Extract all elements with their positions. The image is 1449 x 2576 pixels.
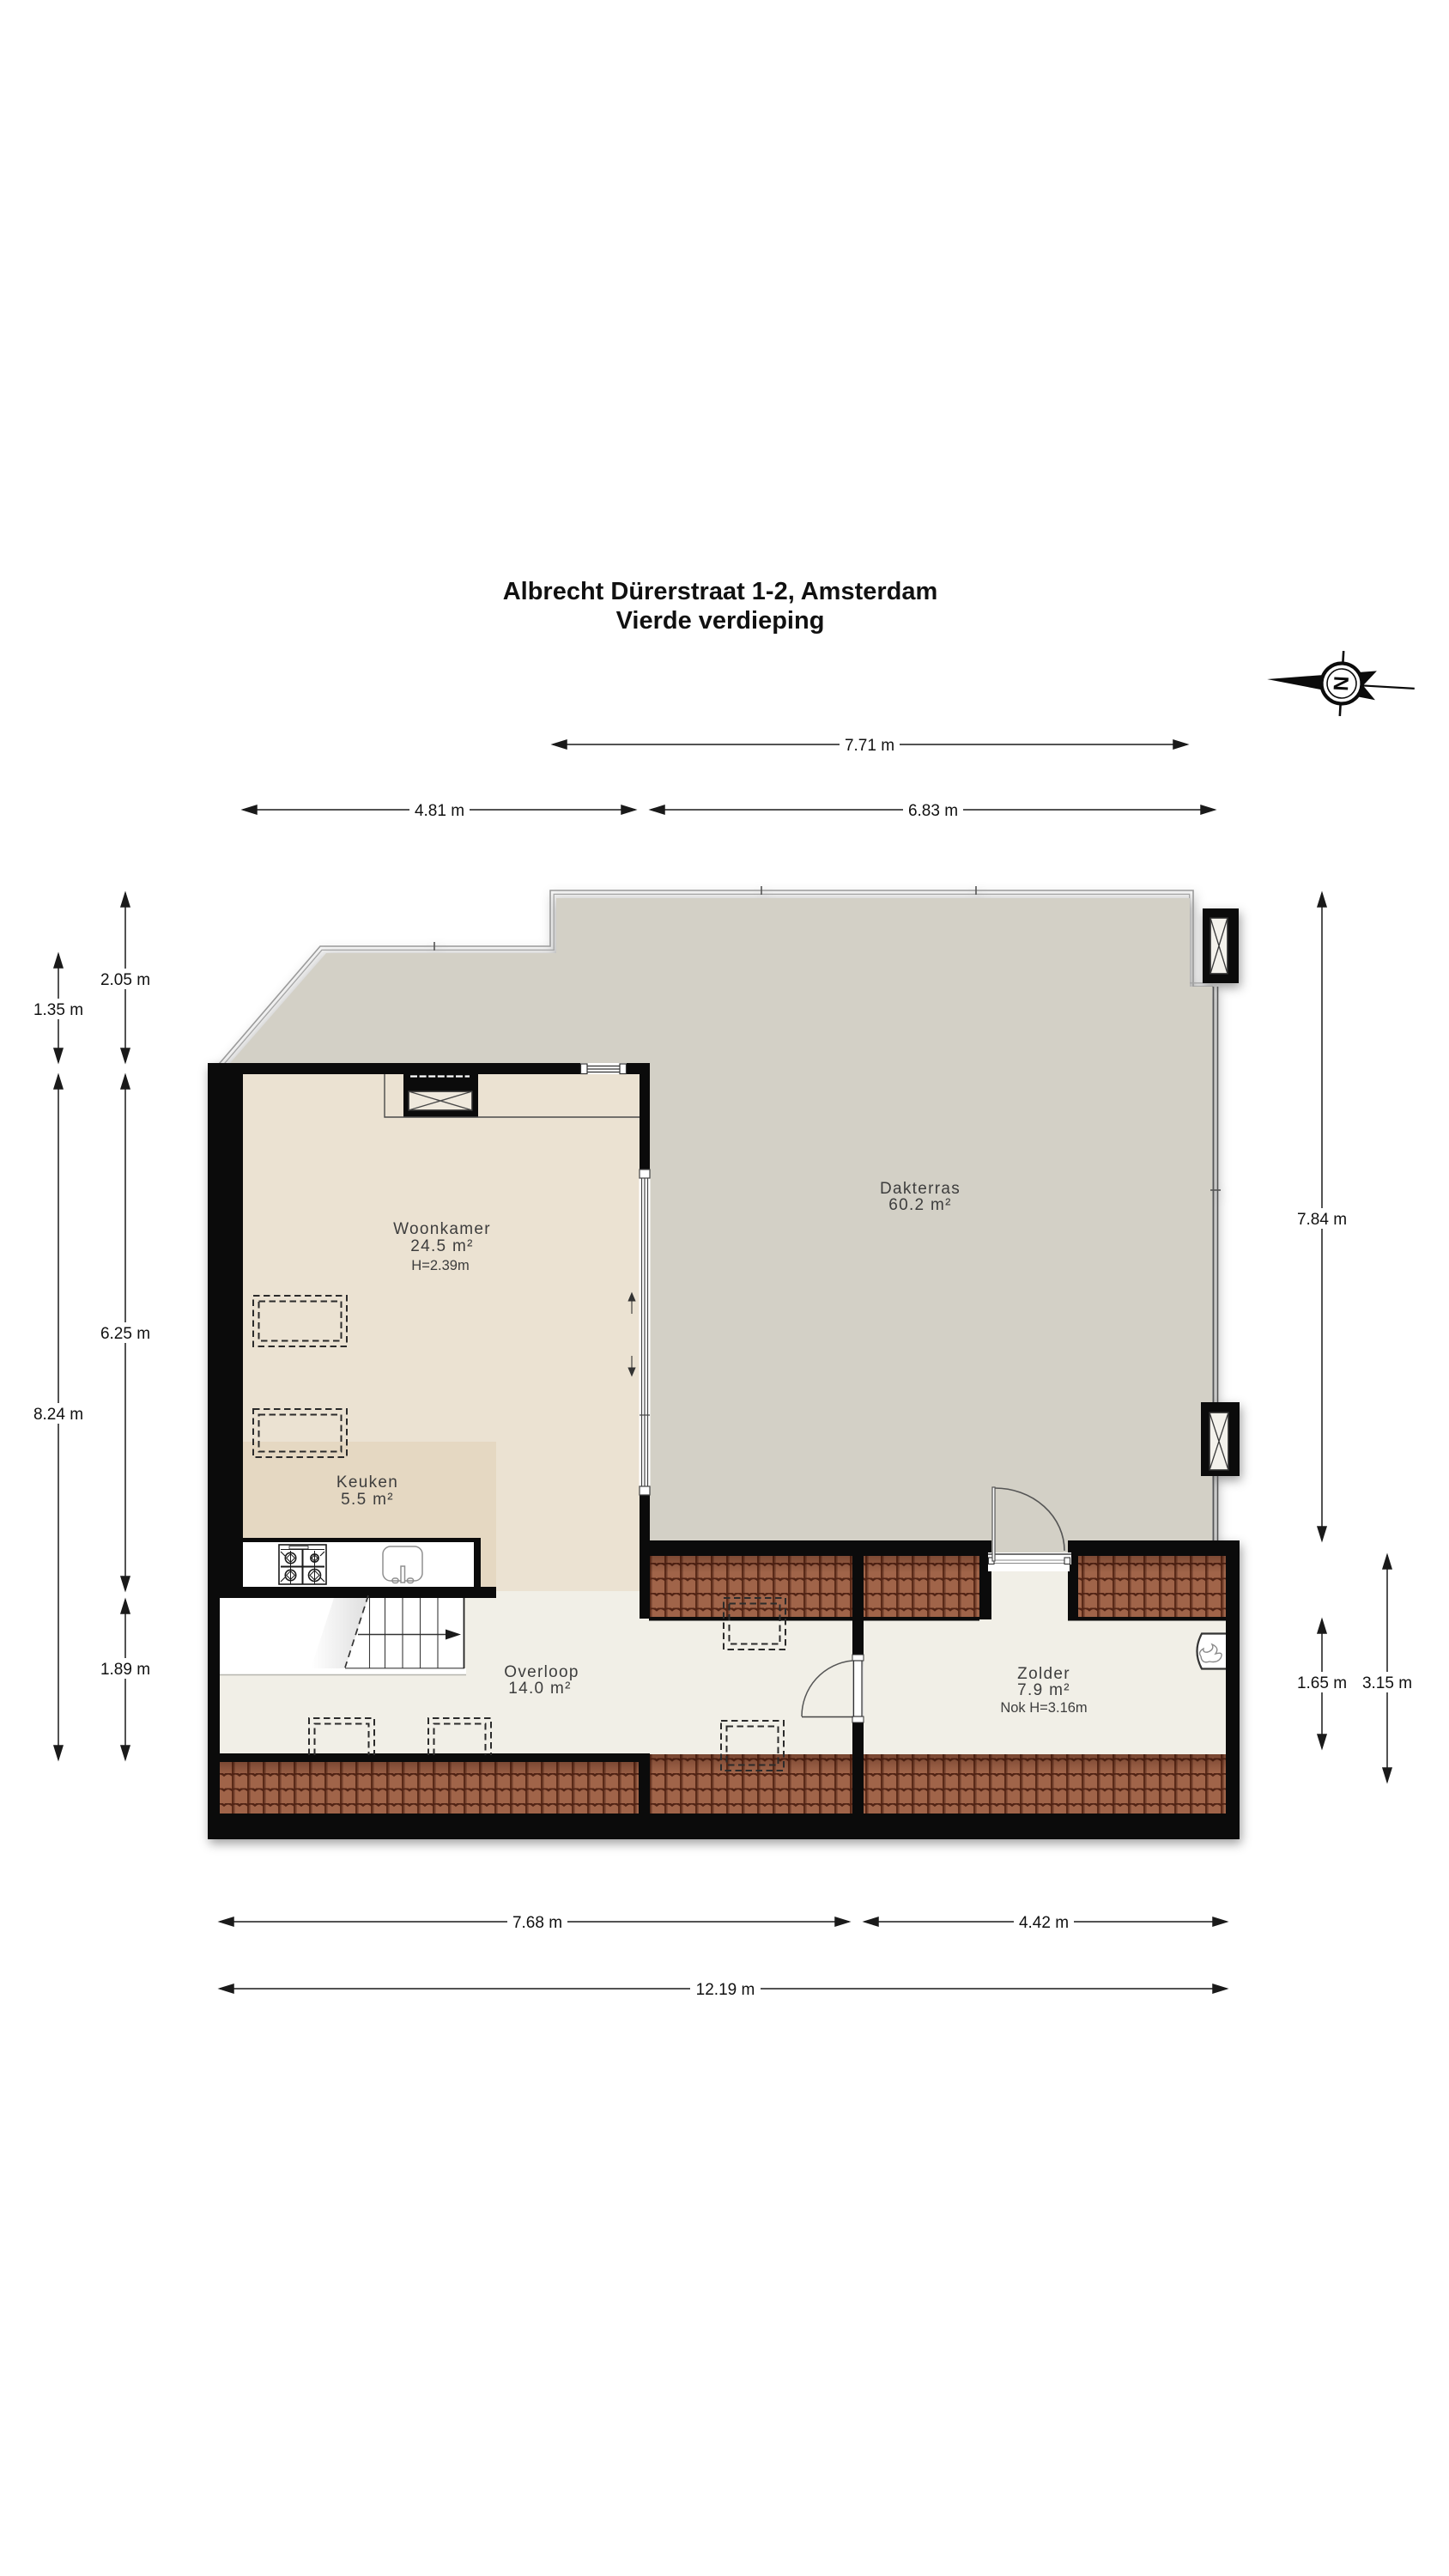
svg-text:6.83 m: 6.83 m xyxy=(908,802,958,820)
svg-text:4.42 m: 4.42 m xyxy=(1019,1914,1069,1932)
svg-text:6.25 m: 6.25 m xyxy=(100,1325,150,1343)
svg-text:1.89 m: 1.89 m xyxy=(100,1661,150,1679)
svg-text:12.19 m: 12.19 m xyxy=(696,1981,755,1999)
svg-text:Keuken: Keuken xyxy=(336,1473,398,1492)
svg-text:H=2.39m: H=2.39m xyxy=(411,1258,469,1273)
svg-text:3.15 m: 3.15 m xyxy=(1362,1674,1412,1692)
svg-text:Albrecht Dürerstraat 1-2, Amst: Albrecht Dürerstraat 1-2, Amsterdam xyxy=(503,578,938,605)
svg-text:Nok H=3.16m: Nok H=3.16m xyxy=(1000,1700,1087,1716)
svg-text:Woonkamer: Woonkamer xyxy=(393,1220,491,1238)
svg-text:14.0 m²: 14.0 m² xyxy=(508,1680,572,1698)
svg-text:N: N xyxy=(1330,676,1354,692)
svg-text:60.2 m²: 60.2 m² xyxy=(888,1196,952,1214)
svg-text:1.65 m: 1.65 m xyxy=(1297,1674,1347,1692)
svg-text:8.24 m: 8.24 m xyxy=(33,1406,83,1424)
svg-text:Dakterras: Dakterras xyxy=(880,1180,961,1198)
svg-text:5.5 m²: 5.5 m² xyxy=(341,1491,394,1509)
svg-text:Vierde verdieping: Vierde verdieping xyxy=(616,607,825,635)
svg-text:7.84 m: 7.84 m xyxy=(1297,1211,1347,1229)
svg-text:Zolder: Zolder xyxy=(1017,1665,1070,1683)
svg-text:7.71 m: 7.71 m xyxy=(845,737,894,755)
svg-text:7.68 m: 7.68 m xyxy=(512,1914,562,1932)
svg-text:4.81 m: 4.81 m xyxy=(415,802,464,820)
svg-text:2.05 m: 2.05 m xyxy=(100,971,150,989)
svg-text:24.5 m²: 24.5 m² xyxy=(410,1237,474,1255)
svg-text:Overloop: Overloop xyxy=(504,1663,579,1681)
svg-text:1.35 m: 1.35 m xyxy=(33,1001,83,1019)
svg-text:7.9 m²: 7.9 m² xyxy=(1017,1681,1070,1699)
